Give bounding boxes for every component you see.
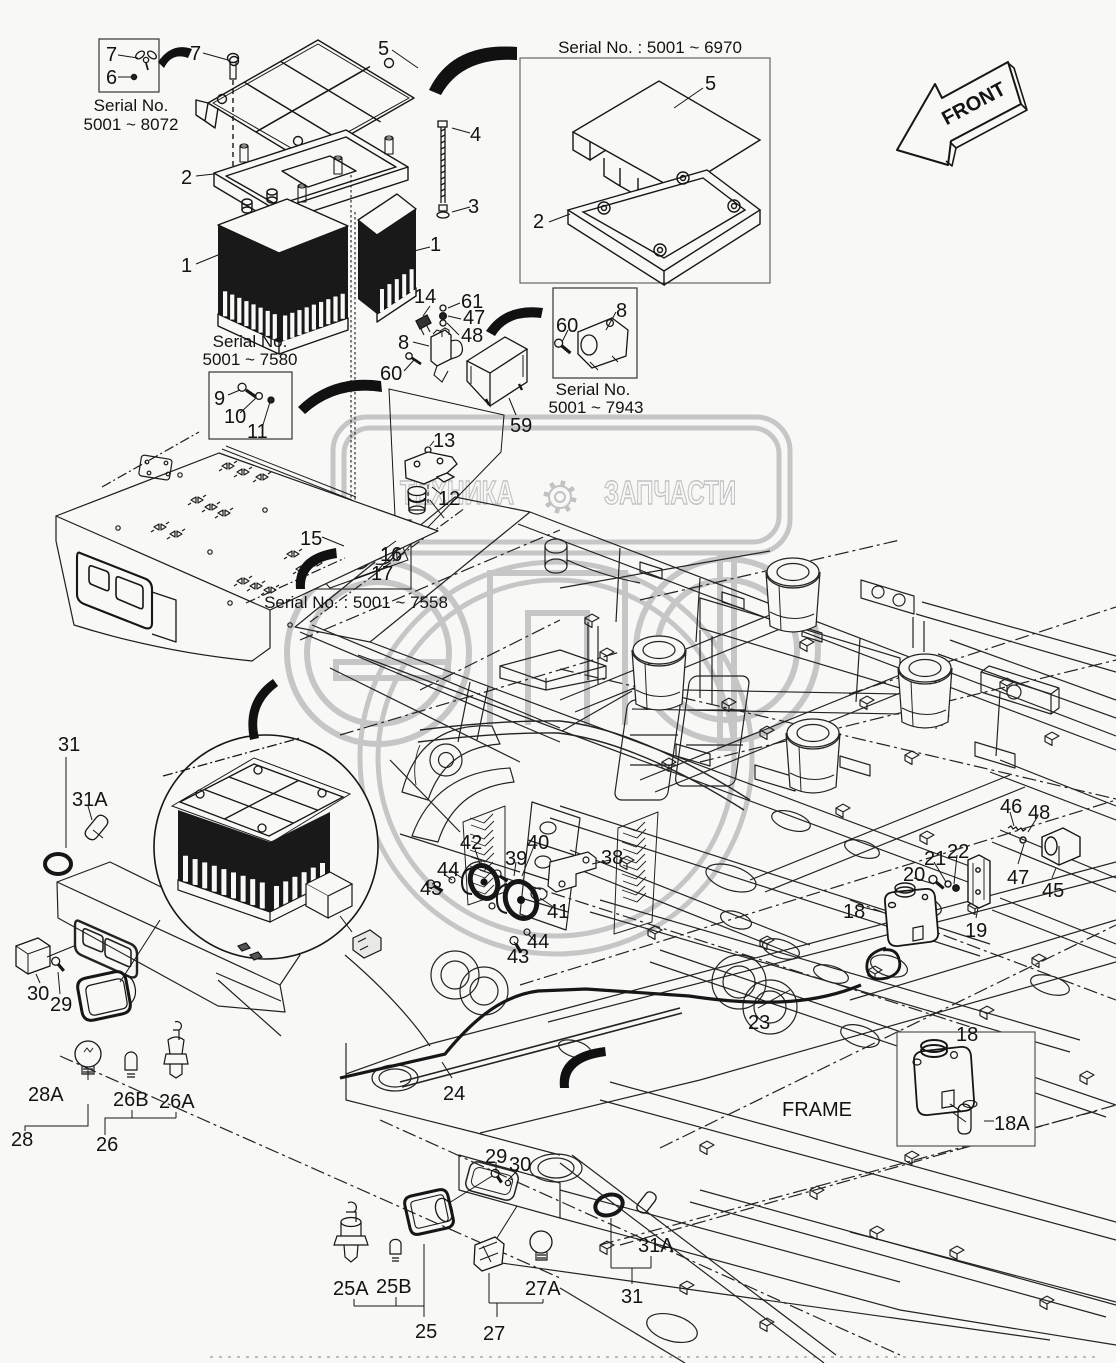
svg-text:5: 5: [378, 38, 389, 60]
svg-text:30: 30: [27, 983, 49, 1005]
svg-text:2: 2: [533, 211, 544, 233]
svg-text:7: 7: [106, 44, 117, 66]
svg-text:23: 23: [748, 1012, 770, 1034]
svg-text:44: 44: [527, 931, 549, 953]
svg-text:41: 41: [547, 901, 569, 923]
svg-text:31: 31: [621, 1286, 643, 1308]
svg-text:29: 29: [485, 1146, 507, 1168]
svg-text:21: 21: [924, 848, 946, 870]
svg-text:4: 4: [470, 124, 481, 146]
svg-text:Serial No.: Serial No.: [94, 96, 169, 115]
svg-text:25: 25: [415, 1321, 437, 1343]
svg-text:24: 24: [443, 1083, 465, 1105]
svg-text:27A: 27A: [525, 1278, 561, 1300]
svg-text:48: 48: [461, 325, 483, 347]
svg-text:43: 43: [507, 946, 529, 968]
svg-text:17: 17: [371, 563, 393, 585]
svg-text:ЗАПЧАСТИ: ЗАПЧАСТИ: [604, 474, 736, 511]
svg-text:7: 7: [190, 43, 201, 65]
svg-text:5001 ~ 7580: 5001 ~ 7580: [202, 350, 297, 369]
svg-text:29: 29: [50, 994, 72, 1016]
svg-text:22: 22: [947, 841, 969, 863]
svg-text:5001 ~ 8072: 5001 ~ 8072: [83, 115, 178, 134]
svg-text:19: 19: [965, 920, 987, 942]
svg-text:28A: 28A: [28, 1084, 64, 1106]
svg-text:43: 43: [420, 878, 442, 900]
svg-text:40: 40: [527, 832, 549, 854]
svg-text:60: 60: [380, 363, 402, 385]
svg-text:25B: 25B: [376, 1276, 412, 1298]
svg-text:18: 18: [956, 1024, 978, 1046]
svg-text:15: 15: [300, 528, 322, 550]
svg-text:48: 48: [1028, 802, 1050, 824]
svg-text:47: 47: [1007, 867, 1029, 889]
svg-text:10: 10: [224, 406, 246, 428]
svg-text:6: 6: [106, 67, 117, 89]
svg-text:25A: 25A: [333, 1278, 369, 1300]
svg-text:39: 39: [505, 848, 527, 870]
svg-text:59: 59: [510, 415, 532, 437]
svg-text:8: 8: [616, 300, 627, 322]
svg-text:3: 3: [468, 196, 479, 218]
svg-text:31A: 31A: [72, 789, 108, 811]
svg-text:46: 46: [1000, 796, 1022, 818]
svg-text:1: 1: [430, 234, 441, 256]
svg-text:FRAME: FRAME: [782, 1099, 852, 1121]
svg-text:60: 60: [556, 315, 578, 337]
svg-text:1: 1: [181, 255, 192, 277]
svg-text:26B: 26B: [113, 1089, 149, 1111]
svg-text:8: 8: [398, 332, 409, 354]
svg-text:5001 ~ 7943: 5001 ~ 7943: [548, 398, 643, 417]
svg-text:45: 45: [1042, 880, 1064, 902]
svg-text:Serial No. : 5001 ~ 6970: Serial No. : 5001 ~ 6970: [558, 38, 742, 57]
svg-text:30: 30: [509, 1154, 531, 1176]
svg-text:27: 27: [483, 1323, 505, 1345]
svg-text:28: 28: [11, 1129, 33, 1151]
svg-text:13: 13: [433, 430, 455, 452]
svg-text:14: 14: [414, 286, 436, 308]
svg-text:26A: 26A: [159, 1091, 195, 1113]
svg-text:5: 5: [705, 73, 716, 95]
svg-text:20: 20: [903, 864, 925, 886]
svg-text:2: 2: [181, 167, 192, 189]
svg-text:18A: 18A: [994, 1113, 1030, 1135]
svg-text:31A: 31A: [638, 1235, 674, 1257]
svg-text:Serial No. : 5001 ~ 7558: Serial No. : 5001 ~ 7558: [264, 593, 448, 612]
svg-text:12: 12: [438, 488, 460, 510]
svg-text:11: 11: [247, 421, 268, 443]
svg-text:26: 26: [96, 1134, 118, 1156]
svg-text:18: 18: [843, 901, 865, 923]
svg-text:Serial No.: Serial No.: [556, 380, 631, 399]
svg-text:42: 42: [460, 832, 482, 854]
svg-text:31: 31: [58, 734, 80, 756]
svg-text:Serial No.: Serial No.: [213, 332, 288, 351]
svg-text:38: 38: [601, 847, 623, 869]
